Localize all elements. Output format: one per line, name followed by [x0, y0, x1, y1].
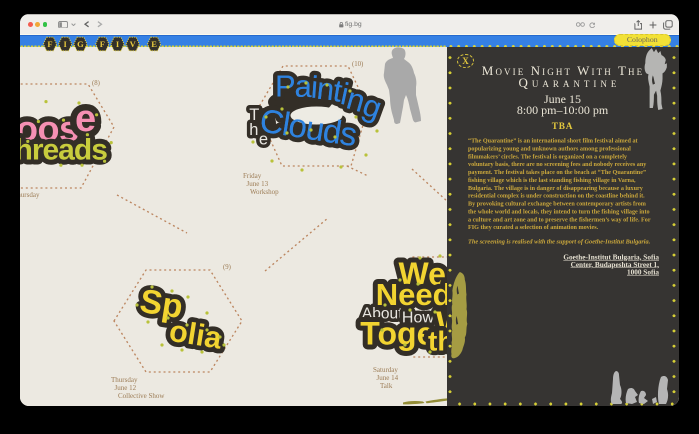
svg-text:G: G [77, 39, 84, 49]
svg-text:Clouds: Clouds [257, 101, 359, 153]
svg-text:olia: olia [167, 314, 225, 356]
svg-text:h: h [249, 121, 258, 139]
svg-text:hreads: hreads [20, 134, 107, 167]
svg-text:F: F [100, 39, 105, 49]
svg-text:E: E [151, 39, 157, 49]
svg-text:F: F [47, 39, 52, 49]
svg-text:Toge: Toge [360, 316, 434, 352]
svg-text:e: e [259, 131, 268, 149]
svg-text:V: V [130, 39, 137, 49]
